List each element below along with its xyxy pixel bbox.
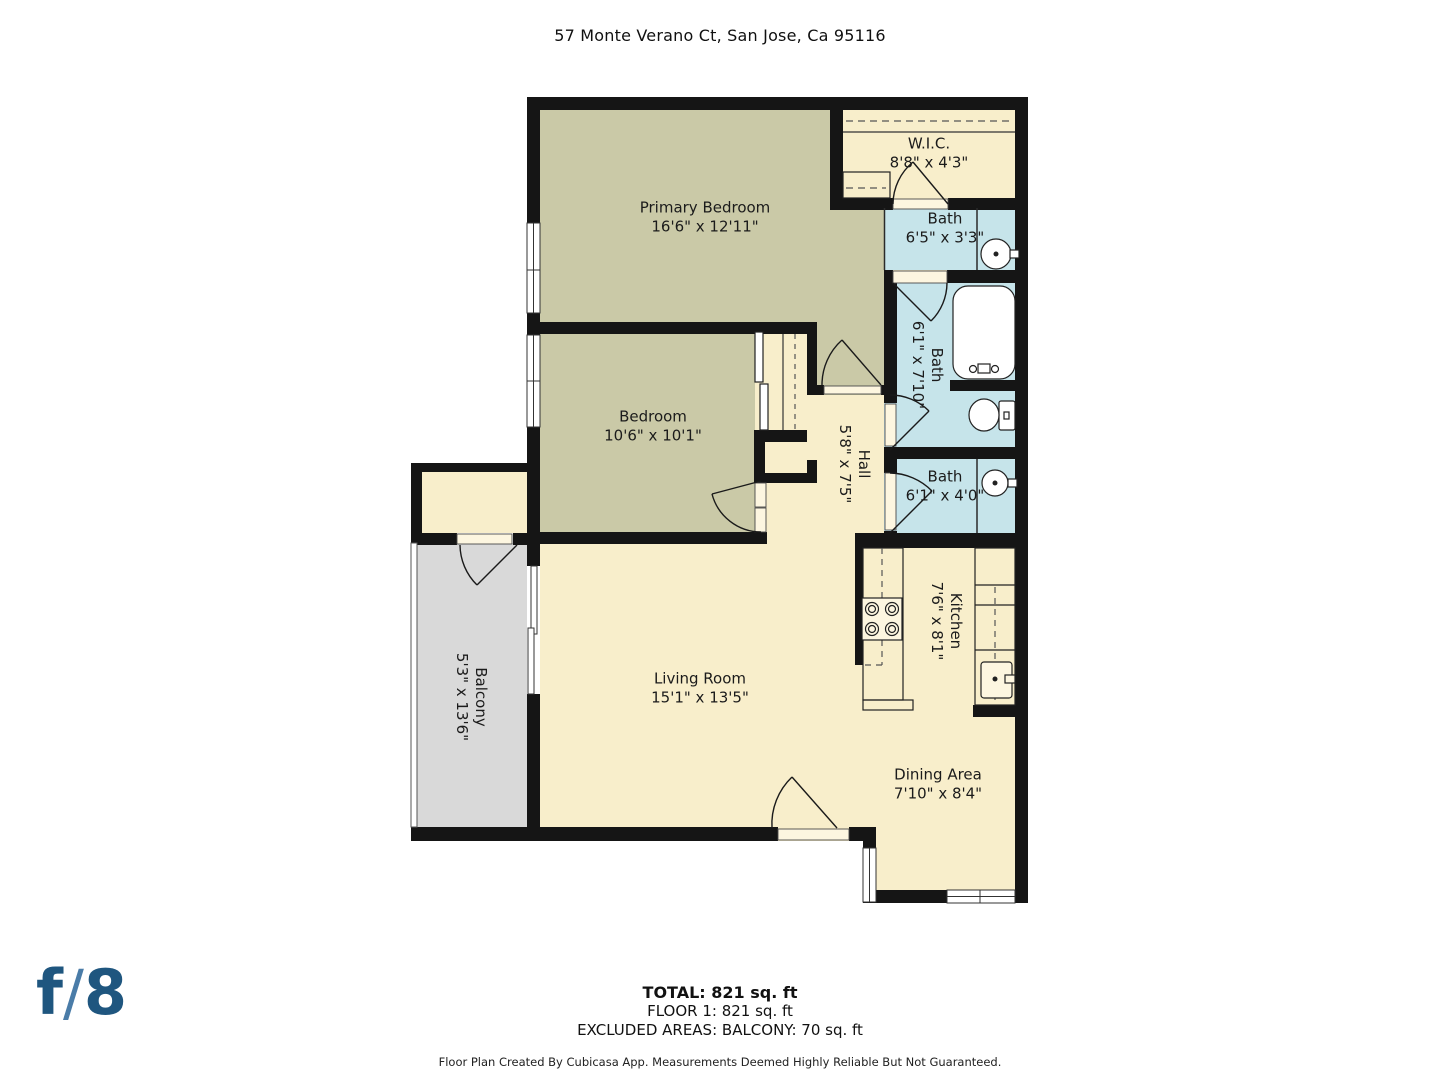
room-label-bath-bottom: Bath 6'1" x 4'0": [906, 467, 985, 505]
room-dims: 5'8" x 7'5": [835, 425, 854, 504]
room-name: W.I.C.: [890, 134, 969, 153]
room-dims: 7'10" x 8'4": [894, 784, 982, 803]
room-dims: 6'1" x 7'10": [908, 321, 927, 409]
room-label-bath-middle: Bath 6'1" x 7'10": [908, 321, 946, 409]
floor-plan-page: 57 Monte Verano Ct, San Jose, Ca 95116: [0, 0, 1440, 1080]
room-dims: 5'3" x 13'6": [452, 653, 471, 741]
room-dims: 6'5" x 3'3": [906, 228, 985, 247]
room-name: Bath: [906, 209, 985, 228]
window-dining-bottom: [947, 890, 1015, 903]
room-name: Bath: [927, 321, 946, 409]
total-area: TOTAL: 821 sq. ft: [0, 983, 1440, 1002]
room-name: Kitchen: [946, 582, 965, 661]
logo-f: f: [36, 956, 63, 1029]
room-name: Living Room: [651, 669, 749, 688]
room-name: Balcony: [471, 653, 490, 741]
room-dims: 6'1" x 4'0": [906, 486, 985, 505]
room-name: Hall: [854, 425, 873, 504]
room-name: Bath: [906, 467, 985, 486]
window-dining-left: [863, 848, 876, 902]
area-totals: TOTAL: 821 sq. ft FLOOR 1: 821 sq. ft EX…: [0, 983, 1440, 1040]
bathtub-icon: [953, 286, 1015, 379]
room-dims: 16'6" x 12'11": [640, 217, 771, 236]
room-name: Dining Area: [894, 765, 982, 784]
sliding-door-balcony: [528, 566, 537, 694]
f8-logo: f/8: [36, 962, 127, 1024]
room-label-dining-area: Dining Area 7'10" x 8'4": [894, 765, 982, 803]
toilet-icon: [969, 399, 1015, 431]
floor-plan-drawing: [0, 0, 1440, 1080]
room-dims: 15'1" x 13'5": [651, 688, 749, 707]
room-name: Primary Bedroom: [640, 198, 771, 217]
room-label-wic: W.I.C. 8'8" x 4'3": [890, 134, 969, 172]
stove-icon: [862, 598, 902, 640]
excluded-area: EXCLUDED AREAS: BALCONY: 70 sq. ft: [0, 1021, 1440, 1040]
room-dims: 8'8" x 4'3": [890, 153, 969, 172]
room-label-kitchen: Kitchen 7'6" x 8'1": [927, 582, 965, 661]
window-primary-bedroom: [527, 223, 540, 313]
room-label-balcony: Balcony 5'3" x 13'6": [452, 653, 490, 741]
floor-area: FLOOR 1: 821 sq. ft: [0, 1002, 1440, 1021]
window-bedroom: [527, 335, 540, 427]
kitchen-sink-icon: [981, 662, 1015, 698]
logo-eight: 8: [84, 956, 127, 1029]
room-label-living-room: Living Room 15'1" x 13'5": [651, 669, 749, 707]
room-label-primary-bedroom: Primary Bedroom 16'6" x 12'11": [640, 198, 771, 236]
balcony-railing: [411, 543, 417, 827]
room-label-hall: Hall 5'8" x 7'5": [835, 425, 873, 504]
room-dims: 7'6" x 8'1": [927, 582, 946, 661]
room-name: Bedroom: [604, 407, 702, 426]
disclaimer-text: Floor Plan Created By Cubicasa App. Meas…: [0, 1055, 1440, 1069]
room-label-bedroom: Bedroom 10'6" x 10'1": [604, 407, 702, 445]
room-dims: 10'6" x 10'1": [604, 426, 702, 445]
logo-slash: /: [63, 956, 84, 1029]
room-label-bath-top: Bath 6'5" x 3'3": [906, 209, 985, 247]
